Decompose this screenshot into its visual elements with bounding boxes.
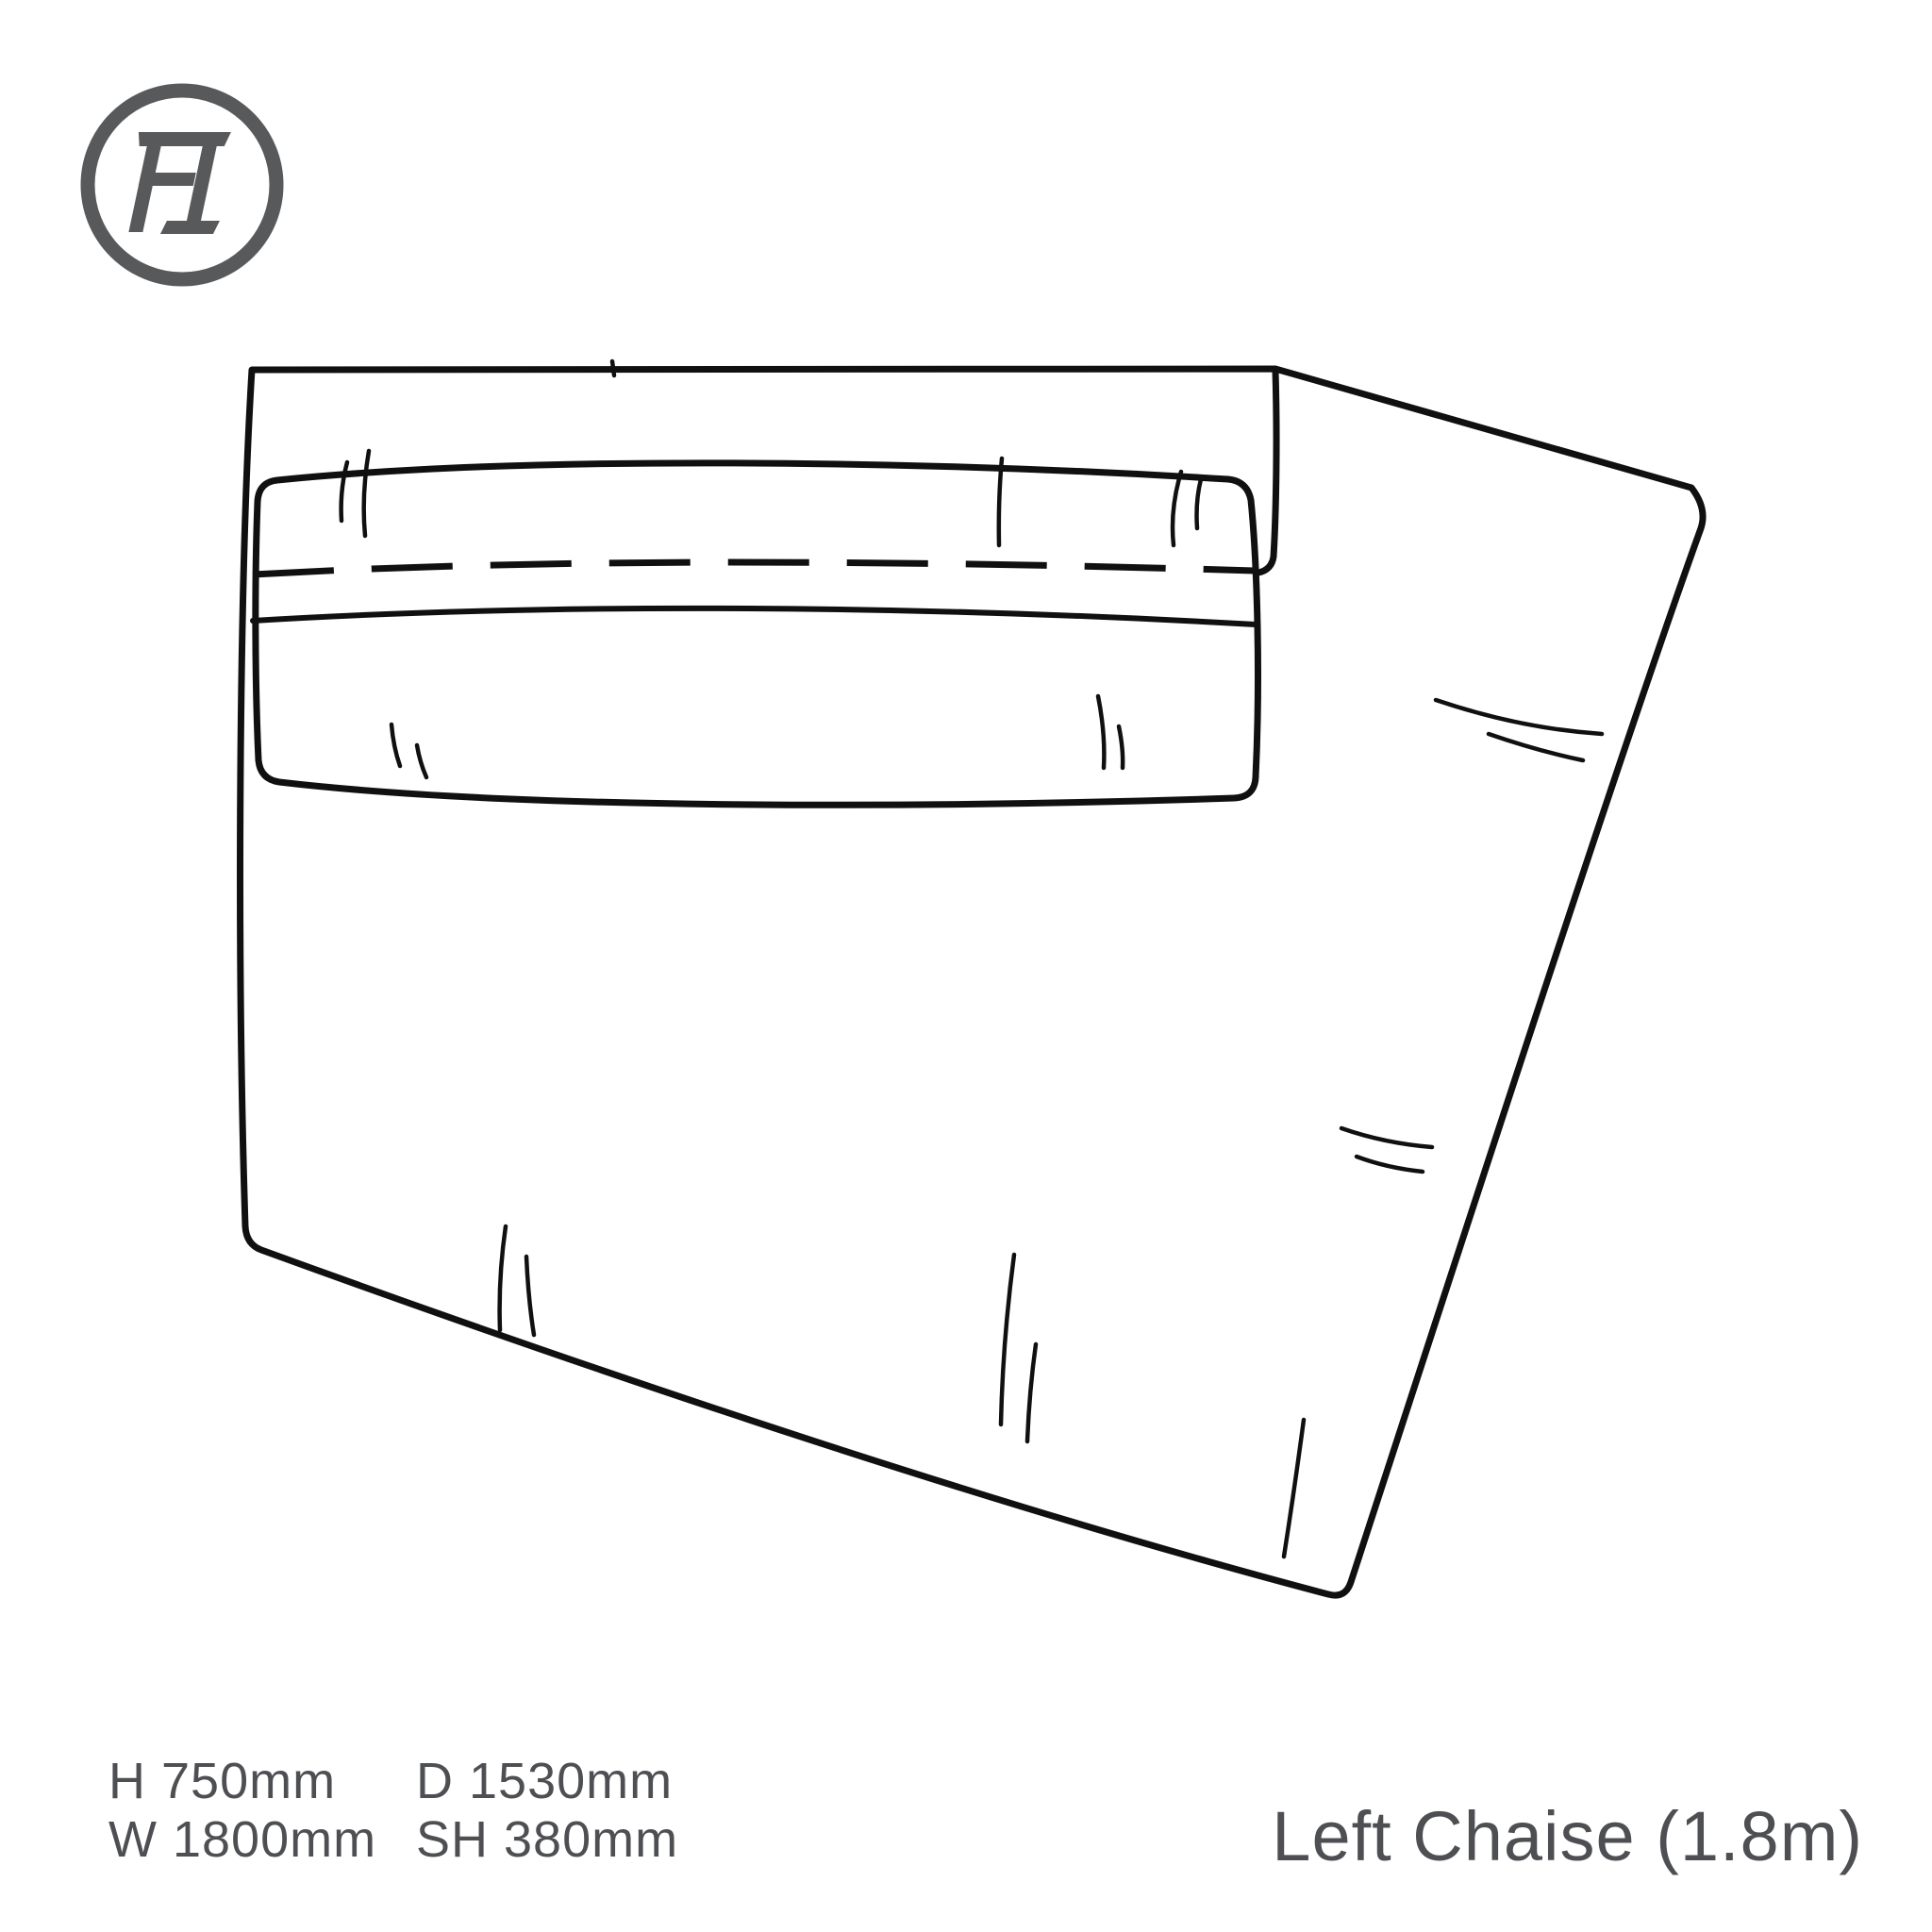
crease-top-middle (999, 458, 1002, 545)
product-spec-sheet: H 750mm W 1800mm D 1530mm SH 380mm Left … (0, 0, 1932, 1932)
crease-cushion-left-2 (417, 745, 426, 777)
logo-one-stem (184, 145, 217, 232)
crease-side-lower-2 (1357, 1157, 1423, 1172)
logo-f-mid-bar (139, 173, 196, 186)
crease-deck-middle-1 (1001, 1255, 1014, 1424)
crease-deck-middle-2 (1027, 1344, 1036, 1441)
spec-height: H 750mm (108, 1753, 336, 1809)
crease-top-left-2 (364, 451, 369, 536)
back-cushion-outline (256, 463, 1258, 805)
seat-deck-outline (241, 369, 1703, 1595)
crease-cushion-right-2 (1119, 726, 1123, 768)
crease-deck-right-long (1284, 1420, 1304, 1557)
logo-fi-monogram-icon (117, 132, 239, 234)
crease-deck-left-1 (500, 1226, 506, 1330)
crease-side-upper-2 (1489, 734, 1583, 760)
spec-width: W 1800mm (108, 1811, 376, 1868)
cushion-dashed-seam (253, 562, 1255, 575)
crease-top-right-2 (1197, 479, 1202, 528)
dimension-specs: H 750mm W 1800mm D 1530mm SH 380mm (108, 1753, 678, 1868)
spec-sheet-svg: H 750mm W 1800mm D 1530mm SH 380mm Left … (0, 0, 1932, 1932)
spec-depth: D 1530mm (416, 1753, 673, 1809)
cushion-split-seam (253, 608, 1256, 625)
crease-top-right-1 (1173, 472, 1181, 545)
spec-seat-height: SH 380mm (416, 1811, 678, 1868)
crease-cushion-left-1 (391, 724, 400, 766)
logo-one-base-bar (160, 221, 220, 234)
crease-deck-left-2 (526, 1257, 534, 1335)
crease-cushion-right-1 (1098, 696, 1104, 768)
top-edge-notch (612, 361, 614, 375)
back-panel-right-edge (1258, 371, 1276, 573)
crease-side-lower-1 (1341, 1128, 1432, 1147)
crease-side-upper-1 (1436, 700, 1602, 734)
product-title: Left Chaise (1.8m) (1272, 1797, 1863, 1875)
crease-top-left-1 (341, 462, 347, 521)
brand-logo (88, 91, 276, 279)
chaise-line-drawing (241, 361, 1703, 1595)
